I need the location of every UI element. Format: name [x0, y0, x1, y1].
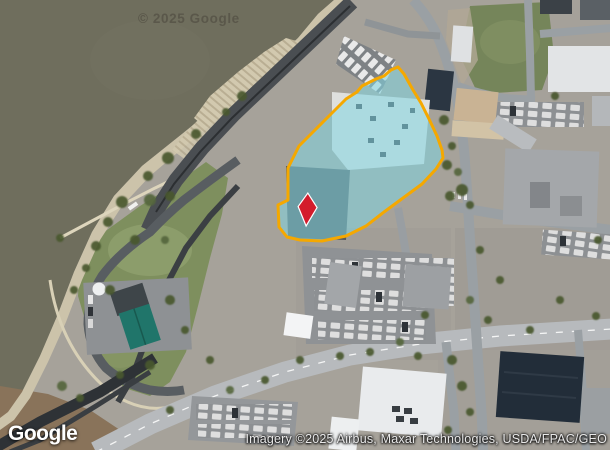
map-viewport: © 2025 Google Google Imagery ©2025 Airbu…: [0, 0, 610, 450]
google-watermark: © 2025 Google: [138, 11, 240, 26]
google-logo[interactable]: Google: [8, 422, 77, 446]
map-attribution: Imagery ©2025 Airbus, Maxar Technologies…: [245, 432, 607, 446]
satellite-map-canvas[interactable]: [0, 0, 610, 450]
